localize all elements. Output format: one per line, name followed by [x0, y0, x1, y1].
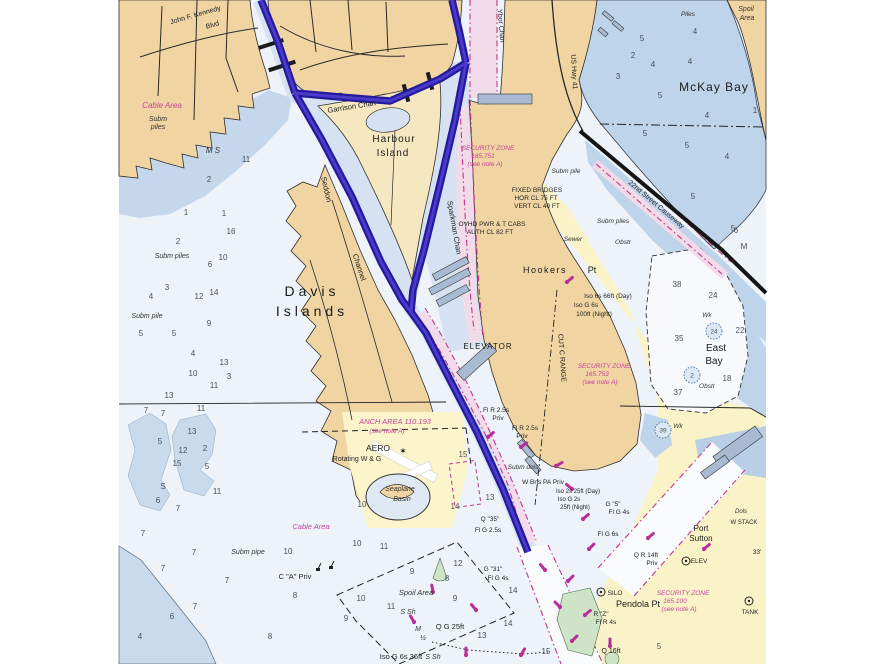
svg-text:24: 24: [710, 329, 718, 336]
map-label: Iso G 2s: [558, 497, 580, 503]
map-label: SECURITY ZONE: [462, 145, 515, 152]
map-label: Q 16ft: [601, 648, 620, 655]
map-label: Dols: [735, 509, 747, 515]
depth-sounding: 6: [170, 612, 175, 621]
depth-sounding: 4: [705, 111, 710, 120]
depth-sounding: 9: [344, 614, 349, 623]
map-label: (see note A): [582, 379, 617, 386]
map-label: 33': [753, 549, 761, 556]
map-label: (see note A): [467, 161, 502, 168]
depth-sounding: 15: [542, 647, 551, 656]
map-label: ELEV: [691, 558, 708, 565]
obstruction-icon: 2: [684, 367, 700, 383]
map-label: Spoil Area: [399, 588, 433, 597]
map-label: M: [415, 626, 421, 633]
depth-sounding: 18: [723, 374, 732, 383]
map-label: M S: [206, 146, 221, 155]
map-label: Iso 2s 25ft (Day): [556, 489, 600, 495]
depth-sounding: 7: [161, 564, 166, 573]
map-label: Subm piles: [155, 253, 190, 260]
depth-sounding: 14: [451, 502, 460, 511]
depth-sounding: 14: [210, 288, 219, 297]
depth-sounding: 38: [673, 280, 682, 289]
map-label: FIXED BRIDGES: [512, 187, 563, 194]
map-label: G "31": [484, 566, 503, 573]
depth-sounding: 5: [158, 437, 163, 446]
depth-sounding: 2: [176, 237, 181, 246]
depth-sounding: 4: [693, 27, 698, 36]
map-label: Port: [694, 524, 709, 533]
map-label: S Sh: [425, 654, 440, 661]
map-label: VERT CL 40 FT: [514, 203, 560, 210]
depth-sounding: 1: [753, 106, 758, 115]
map-label: Cable Area: [292, 522, 329, 531]
depth-sounding: 2: [207, 175, 212, 184]
depth-sounding: 13: [220, 358, 229, 367]
ybor-channel-strip: [470, 0, 497, 98]
depth-sounding: 10: [189, 369, 198, 378]
depth-sounding: 6: [156, 496, 161, 505]
map-label: Obstr: [699, 383, 716, 390]
depth-sounding: 2: [631, 51, 636, 60]
map-label: Q R 14ft: [634, 552, 658, 559]
map-label: 165.751: [471, 153, 495, 160]
map-label: Obstr: [615, 239, 632, 246]
map-label: Q G 25ft: [436, 622, 465, 631]
map-label: Iso G 6s: [574, 302, 599, 309]
map-canvas: 24239✶ John F. KennedyBlvdCable AreaSubm…: [0, 0, 885, 664]
depth-sounding: 13: [478, 631, 487, 640]
map-label: Wk: [673, 423, 683, 430]
depth-sounding: 5: [691, 192, 696, 201]
depth-sounding: 3: [165, 283, 170, 292]
map-label: Hookers: [523, 265, 567, 275]
depth-sounding: 12: [179, 446, 188, 455]
map-label: Fl R 2.5s: [512, 425, 539, 432]
light-flare-icon: [464, 648, 468, 657]
map-label: S Sh: [400, 609, 415, 616]
map-label: Basin: [393, 496, 411, 503]
map-label: Seaplane: [385, 486, 415, 493]
map-label: Priv: [492, 415, 504, 422]
map-label: Fl G 4s: [609, 509, 631, 516]
map-label: Priv: [646, 560, 658, 567]
depth-sounding: 37: [674, 388, 683, 397]
depth-sounding: 11: [242, 155, 251, 164]
depth-sounding: 16: [227, 227, 236, 236]
depth-sounding: 7: [176, 504, 181, 513]
depth-sounding: M: [741, 242, 748, 251]
depth-sounding: 14: [509, 586, 518, 595]
map-label: Area: [739, 15, 755, 22]
depth-sounding: S: [160, 482, 165, 491]
map-label: 165.753: [585, 371, 609, 378]
depth-sounding: 7: [193, 602, 198, 611]
map-label: Sutton: [689, 534, 712, 543]
depth-sounding: 13: [486, 493, 495, 502]
map-label: SECURITY ZONE: [578, 363, 631, 370]
map-label: East: [706, 343, 726, 354]
map-label: Pt: [588, 265, 597, 275]
depth-sounding: 24: [709, 291, 718, 300]
depth-sounding: 9: [410, 567, 415, 576]
map-label: Spoil: [738, 6, 754, 13]
depth-sounding: 11: [197, 404, 206, 413]
depth-sounding: 4: [688, 57, 693, 66]
svg-text:2: 2: [690, 373, 694, 380]
map-label: Pendola Pt: [616, 599, 661, 609]
depth-sounding: 15: [459, 450, 468, 459]
map-label: McKay Bay: [679, 80, 749, 94]
map-label: W Bns PA Priv: [522, 479, 565, 486]
map-label: 25ft (Night): [560, 505, 590, 511]
depth-sounding: 7: [161, 409, 166, 418]
map-label: Priv: [516, 433, 528, 440]
depth-sounding: 5: [658, 91, 663, 100]
depth-sounding: 12: [195, 292, 204, 301]
map-label: AERO: [366, 443, 390, 453]
map-label: Fl R 2.5s: [483, 407, 510, 414]
map-label: piles: [150, 124, 166, 131]
map-label: Iso 6s 66ft (Day): [584, 293, 632, 300]
depth-sounding: 8: [268, 632, 273, 641]
map-label: Cable Area: [142, 101, 182, 110]
map-label: Bay: [705, 356, 722, 367]
map-label: AUTH CL 82 FT: [467, 229, 513, 236]
depth-sounding: 2: [203, 444, 208, 453]
map-label: ELEVATOR: [463, 342, 512, 351]
map-label: G "5": [605, 501, 621, 508]
obstruction-icon: 39: [655, 422, 671, 438]
depth-sounding: 10: [353, 539, 362, 548]
depth-sounding: 5: [172, 329, 177, 338]
depth-sounding: 4: [138, 632, 143, 641]
map-label: ½: [420, 634, 426, 642]
depth-sounding: 7: [144, 406, 149, 415]
map-label: 22: [736, 326, 745, 335]
map-label: R "Z": [593, 611, 609, 618]
depth-sounding: 4: [651, 60, 656, 69]
map-label: Davis: [284, 283, 339, 299]
depth-sounding: 11: [210, 381, 219, 390]
depth-sounding: 9: [207, 319, 212, 328]
depth-sounding: 13: [188, 427, 197, 436]
map-label: Subm pipe: [231, 549, 265, 556]
map-label: (see note A): [661, 606, 696, 613]
depth-sounding: 10: [358, 500, 367, 509]
depth-sounding: 1: [222, 209, 227, 218]
map-label: Rotating W & G: [333, 456, 382, 463]
svg-text:39: 39: [659, 428, 667, 435]
depth-sounding: 7: [192, 548, 197, 557]
depth-sounding: 35: [675, 334, 684, 343]
depth-sounding: 4: [725, 152, 730, 161]
depth-sounding: 3: [616, 72, 621, 81]
map-label: Q "35": [481, 516, 500, 523]
depth-sounding: 11: [387, 602, 396, 611]
map-label: Fl G 2.5s: [475, 527, 502, 534]
map-label: Subm: [149, 116, 167, 123]
map-label: Fl G 4s: [488, 575, 510, 582]
map-label: Piles: [681, 11, 696, 18]
map-label: Subm pile: [552, 168, 581, 175]
depth-sounding: 14: [504, 619, 513, 628]
map-label: 100ft (Night): [576, 311, 612, 318]
depth-sounding: 4: [191, 349, 196, 358]
map-label: Fl G 6s: [598, 531, 620, 538]
depth-sounding: 7: [141, 529, 146, 538]
map-label: Fl R 4s: [596, 619, 617, 626]
depth-sounding: 6: [734, 226, 739, 235]
map-label: Wk: [702, 312, 712, 319]
nautical-chart-screenshot: 24239✶ John F. KennedyBlvdCable AreaSubm…: [0, 0, 885, 664]
map-label: Harbour: [372, 134, 415, 145]
depth-sounding: 3: [227, 372, 232, 381]
aero-beacon-icon: ✶: [399, 446, 407, 456]
depth-sounding: 4: [149, 292, 154, 301]
depth-sounding: 13: [165, 391, 174, 400]
map-label: Iso G 6s 36ft: [380, 652, 423, 661]
map-label: TANK: [742, 609, 760, 616]
depth-sounding: 5: [643, 129, 648, 138]
depth-sounding: 12: [454, 559, 463, 568]
depth-sounding: 7: [225, 576, 230, 585]
map-label: Subm dols: [508, 464, 539, 471]
depth-sounding: 6: [208, 260, 213, 269]
depth-sounding: 8: [293, 591, 298, 600]
depth-sounding: 15: [173, 459, 182, 468]
depth-sounding: 11: [380, 542, 389, 551]
map-label: ANCH AREA 110.193: [358, 417, 432, 426]
map-label: Islands: [276, 303, 348, 319]
depth-sounding: 5: [640, 34, 645, 43]
depth-sounding: 9: [453, 594, 458, 603]
depth-sounding: 5: [657, 642, 662, 651]
map-label: Subm piles: [597, 218, 630, 225]
map-label: 165.100: [663, 598, 687, 605]
depth-sounding: 10: [284, 547, 293, 556]
map-label: (see note A): [369, 428, 404, 435]
light-flare-icon: [608, 639, 612, 648]
map-label: HOR CL 75 FT: [514, 195, 557, 202]
obstruction-icon: 24: [706, 323, 722, 339]
depth-sounding: 5: [685, 141, 690, 150]
map-label: SILO: [608, 590, 623, 597]
depth-sounding: 5: [205, 462, 210, 471]
map-label: C "A" Priv: [279, 572, 312, 581]
map-label: Island: [377, 148, 410, 159]
depth-sounding: 8: [445, 574, 450, 583]
map-label: Sewer: [564, 236, 583, 243]
depth-sounding: 10: [219, 253, 228, 262]
map-label: W STACK: [731, 520, 758, 526]
depth-sounding: 5: [139, 329, 144, 338]
map-label: OVHD PWR & T CABS: [459, 221, 527, 228]
depth-sounding: 1: [184, 208, 189, 217]
map-label: SECURITY ZONE: [657, 590, 710, 597]
depth-sounding: 10: [357, 594, 366, 603]
map-label: Subm pile: [131, 313, 162, 320]
depth-sounding: 11: [213, 487, 222, 496]
